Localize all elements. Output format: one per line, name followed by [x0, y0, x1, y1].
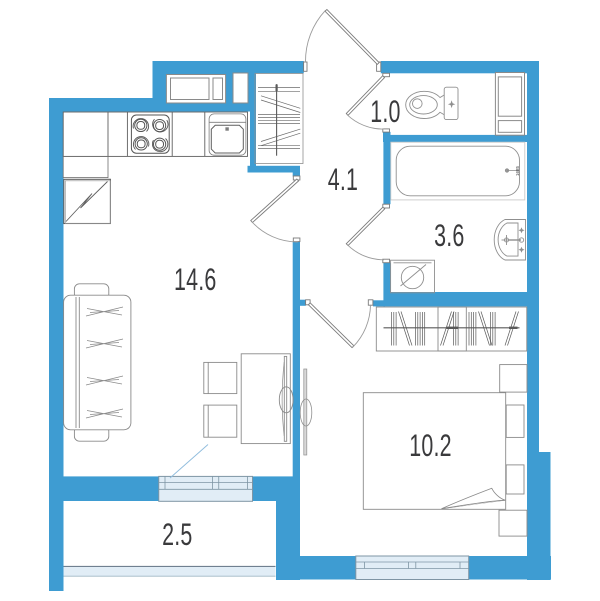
svg-text:3.6: 3.6: [434, 218, 464, 253]
svg-text:2.5: 2.5: [162, 517, 192, 552]
svg-text:1.0: 1.0: [370, 94, 400, 129]
svg-text:1685: 1685: [515, 165, 520, 176]
svg-text:14.6: 14.6: [174, 262, 216, 297]
svg-text:10.2: 10.2: [409, 428, 451, 463]
svg-text:4.1: 4.1: [328, 162, 358, 197]
